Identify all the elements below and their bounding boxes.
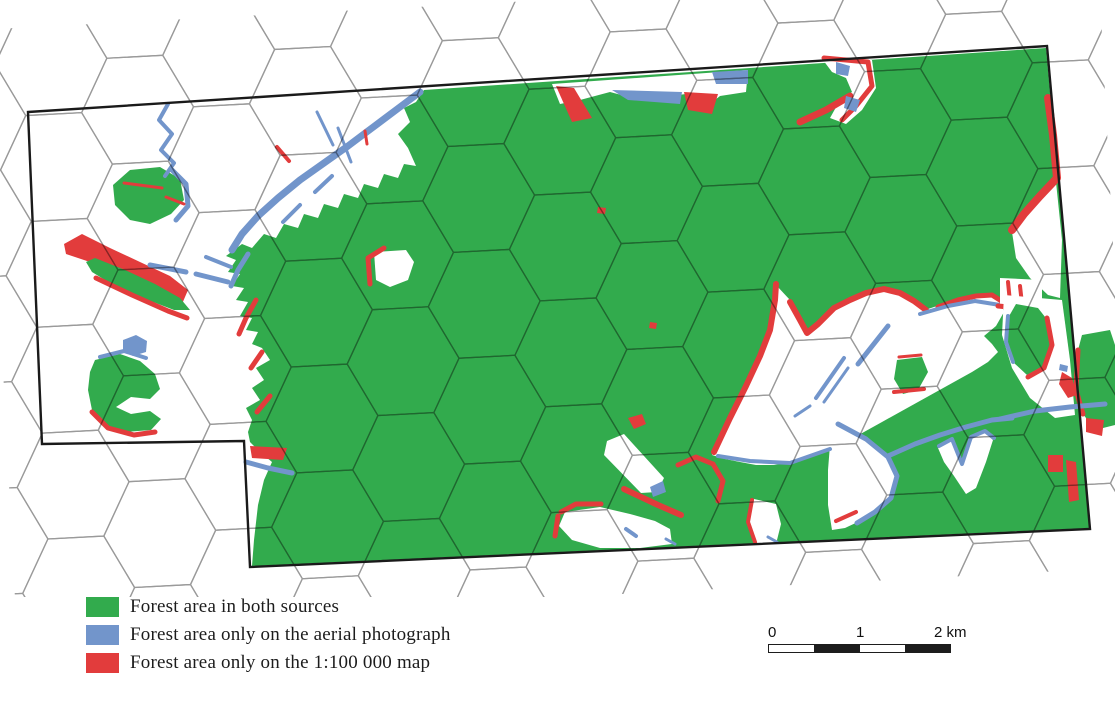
scale-bar: 0 1 2 km bbox=[768, 624, 958, 660]
scale-label-0: 0 bbox=[768, 624, 776, 641]
legend-item-aerial: Forest area only on the aerial photograp… bbox=[86, 624, 451, 645]
map-canvas bbox=[0, 0, 1115, 597]
legend-item-map100k: Forest area only on the 1:100 000 map bbox=[86, 652, 451, 673]
scale-bar-segment bbox=[769, 645, 814, 652]
map-figure: Forest area in both sources Forest area … bbox=[0, 0, 1115, 703]
scale-bar-rule bbox=[768, 644, 951, 653]
scale-bar-labels: 0 1 2 km bbox=[768, 624, 958, 642]
legend-item-both: Forest area in both sources bbox=[86, 596, 451, 617]
legend-label-both: Forest area in both sources bbox=[130, 596, 339, 618]
legend-swatch-both bbox=[86, 597, 119, 617]
scale-bar-segment bbox=[905, 645, 950, 652]
scale-bar-segment bbox=[860, 645, 905, 652]
scale-bar-segment bbox=[814, 645, 859, 652]
scale-label-1: 1 bbox=[856, 624, 864, 641]
legend-label-aerial: Forest area only on the aerial photograp… bbox=[130, 624, 451, 646]
legend-label-map100k: Forest area only on the 1:100 000 map bbox=[130, 652, 430, 674]
scale-label-2: 2 km bbox=[934, 624, 967, 641]
legend-swatch-aerial bbox=[86, 625, 119, 645]
legend-swatch-map100k bbox=[86, 653, 119, 673]
legend: Forest area in both sources Forest area … bbox=[86, 596, 451, 680]
